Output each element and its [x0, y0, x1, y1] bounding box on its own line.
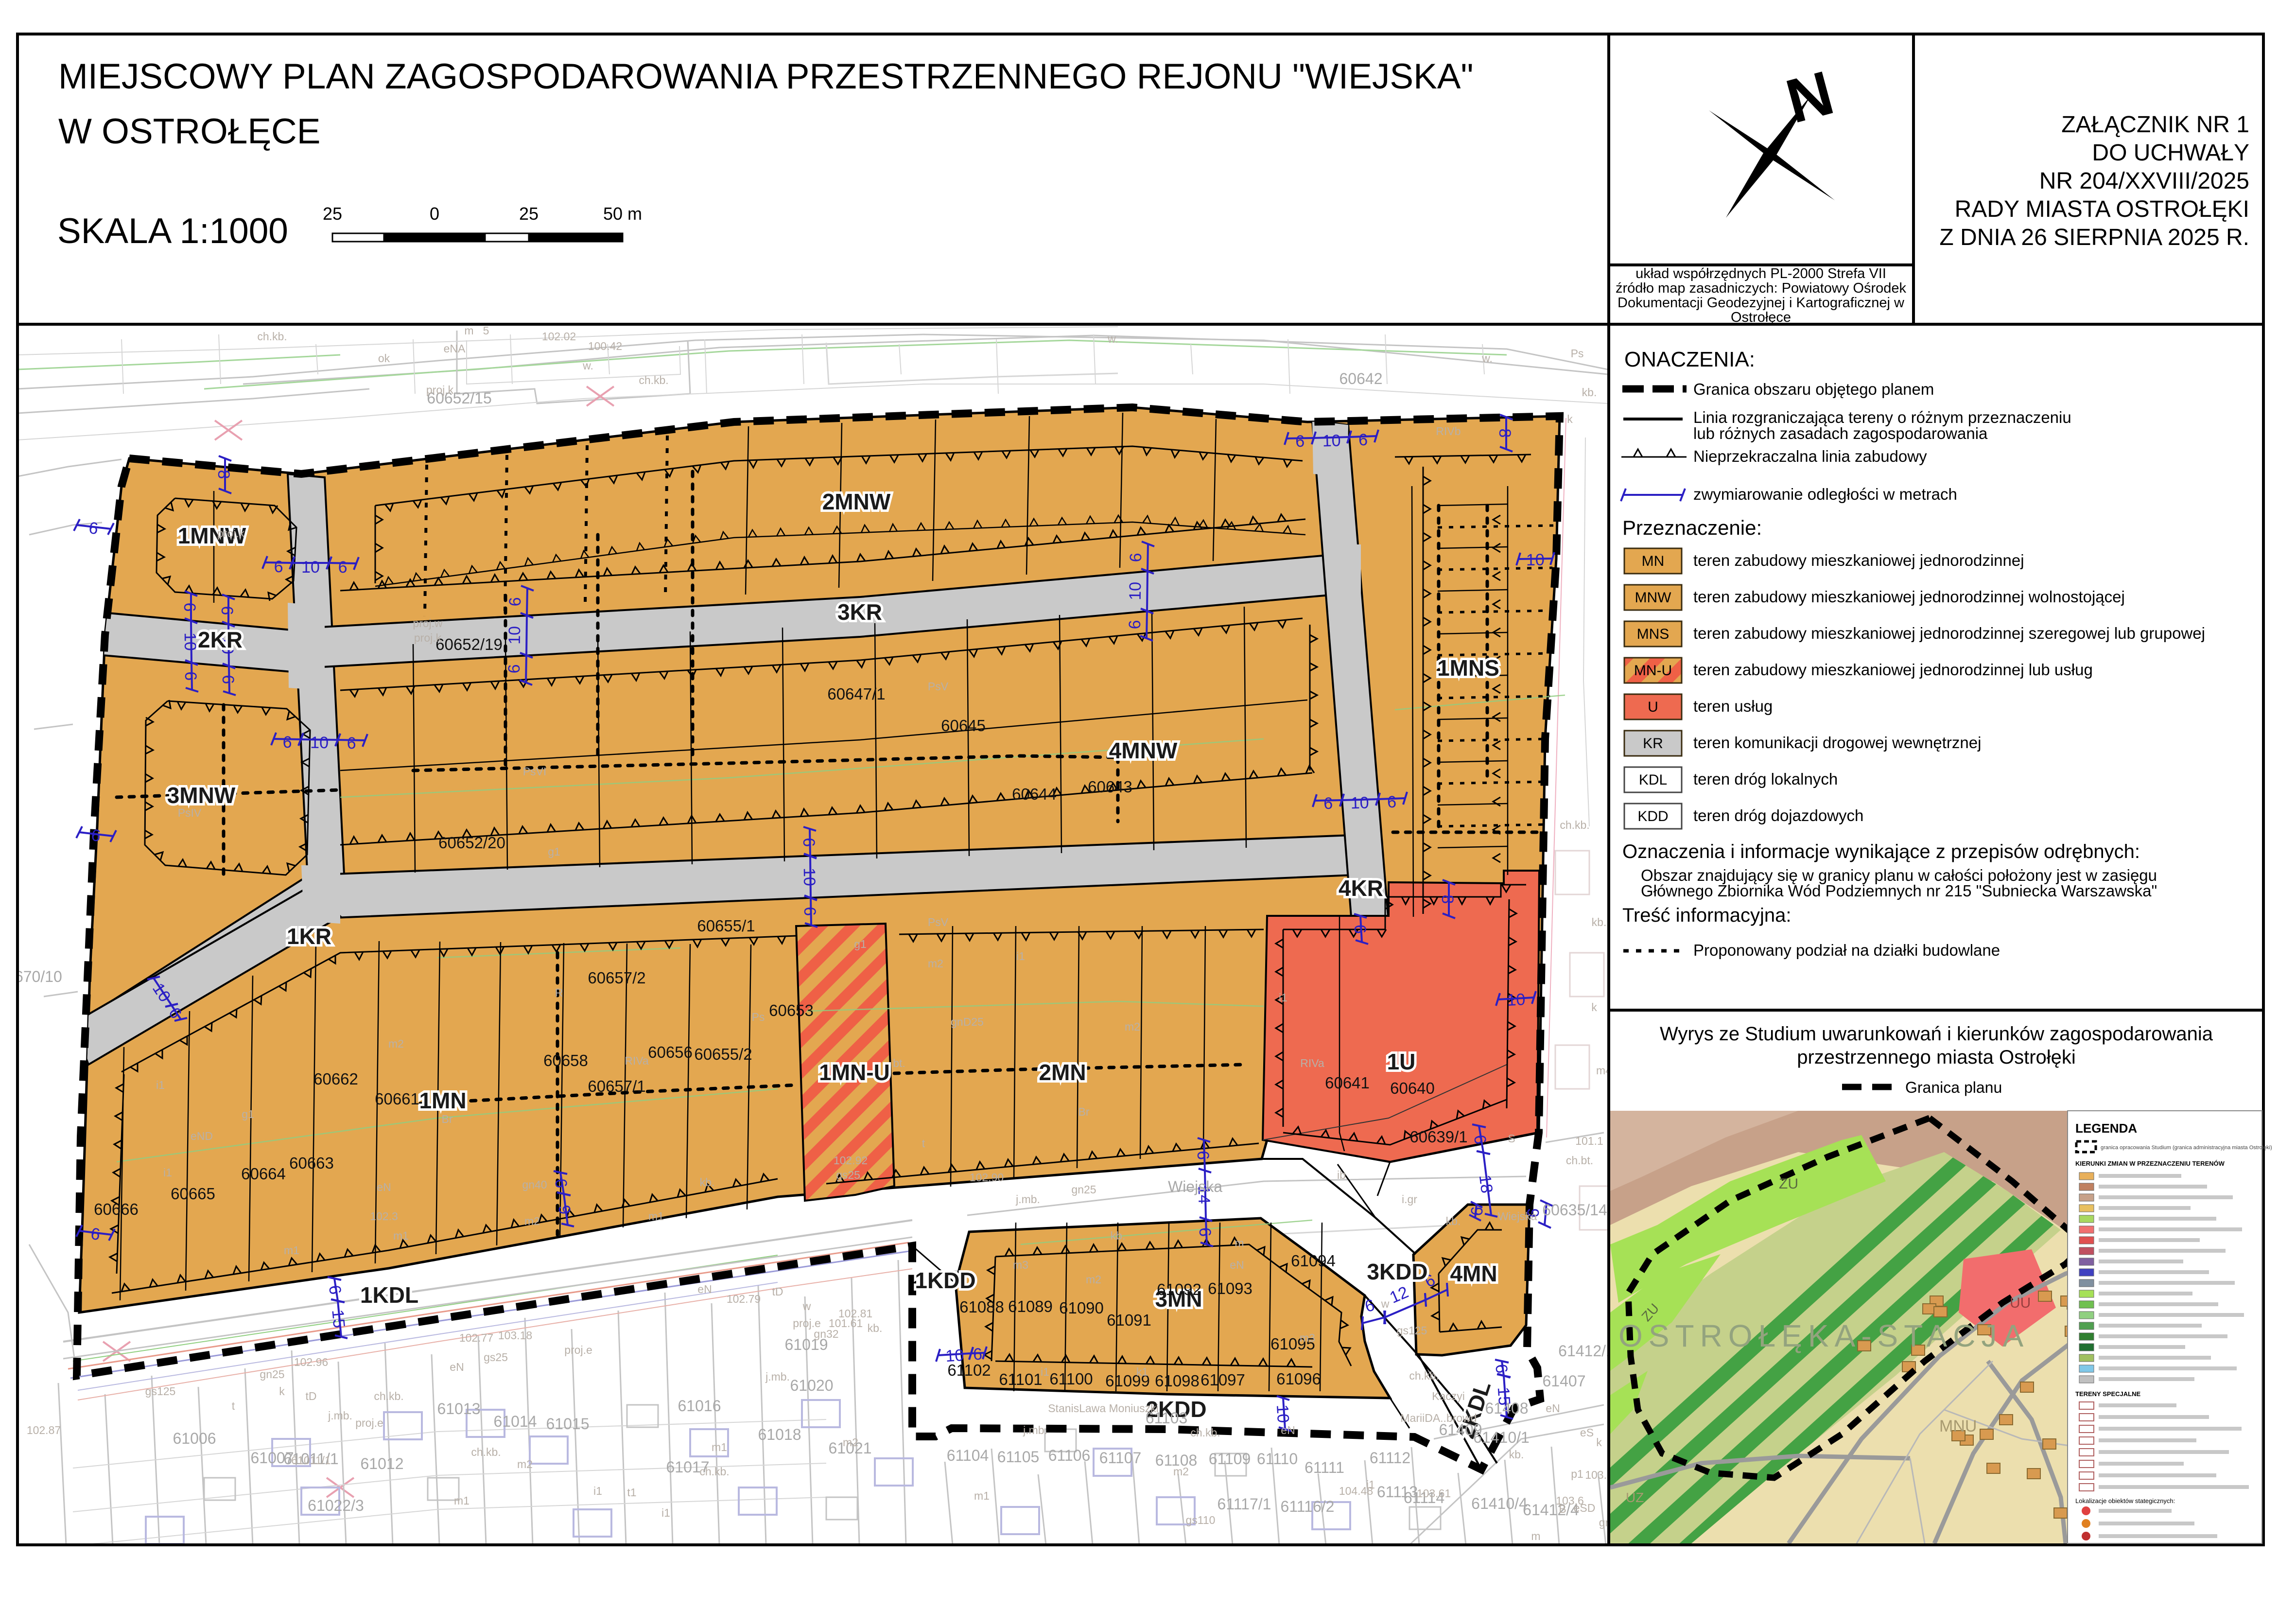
- svg-text:10: 10: [1350, 794, 1369, 813]
- svg-text:61102: 61102: [947, 1361, 991, 1379]
- svg-text:Ps: Ps: [752, 1011, 765, 1023]
- svg-text:2MNW: 2MNW: [822, 489, 891, 514]
- svg-text:UU: UU: [2010, 1295, 2031, 1311]
- svg-text:3MNW: 3MNW: [167, 783, 236, 808]
- svg-text:S: S: [1508, 1132, 1515, 1145]
- svg-text:lub różnych zasadach zagospoda: lub różnych zasadach zagospodarowania: [1693, 424, 1988, 442]
- svg-text:TERENY SPECJALNE: TERENY SPECJALNE: [2075, 1390, 2140, 1398]
- svg-text:eN: eN: [697, 1283, 712, 1295]
- svg-text:teren komunikacji drogowej wew: teren komunikacji drogowej wewnętrznej: [1693, 734, 1981, 752]
- svg-text:m2: m2: [1173, 1465, 1189, 1478]
- svg-text:1MN-U: 1MN-U: [819, 1060, 890, 1085]
- svg-text:6: 6: [180, 603, 199, 612]
- svg-text:61090: 61090: [1059, 1299, 1104, 1317]
- svg-text:61412/1: 61412/1: [1558, 1342, 1615, 1360]
- svg-text:4MNW: 4MNW: [1109, 738, 1178, 763]
- svg-text:NR 204/XXVIII/2025: NR 204/XXVIII/2025: [2039, 168, 2249, 194]
- svg-text:źródło map zasadniczych: Powia: źródło map zasadniczych: Powiatowy Ośrod…: [1616, 280, 1906, 296]
- svg-text:102.90: 102.90: [970, 1171, 1004, 1184]
- svg-text:60666: 60666: [94, 1200, 139, 1218]
- svg-text:61092: 61092: [1157, 1280, 1201, 1298]
- svg-text:m1: m1: [648, 1210, 664, 1223]
- svg-text:60642: 60642: [1339, 370, 1383, 387]
- svg-text:60635/14: 60635/14: [1542, 1201, 1607, 1219]
- svg-text:zwymiarowanie odległości w met: zwymiarowanie odległości w metrach: [1693, 485, 1957, 503]
- svg-text:PsV: PsV: [928, 916, 949, 928]
- svg-text:R: R: [555, 986, 563, 999]
- svg-text:ch.kb.: ch.kb.: [1409, 1369, 1439, 1382]
- svg-text:tD: tD: [772, 1285, 783, 1298]
- svg-text:60655/1: 60655/1: [697, 917, 755, 935]
- svg-text:61109: 61109: [1209, 1450, 1251, 1468]
- svg-text:3KR: 3KR: [837, 599, 882, 625]
- svg-text:103.61: 103.61: [1417, 1487, 1451, 1500]
- svg-text:6: 6: [506, 597, 524, 607]
- svg-text:eN: eN: [1230, 1259, 1244, 1271]
- svg-text:60653: 60653: [769, 1001, 814, 1019]
- svg-text:Oznaczenia i informacje wynika: Oznaczenia i informacje wynikające z prz…: [1622, 841, 2140, 862]
- svg-text:60641: 60641: [1325, 1074, 1370, 1092]
- svg-text:ch.kb.: ch.kb.: [699, 1465, 729, 1478]
- svg-text:ch.kb.: ch.kb.: [1560, 819, 1589, 831]
- svg-text:61093: 61093: [1208, 1279, 1252, 1297]
- svg-text:teren dróg lokalnych: teren dróg lokalnych: [1693, 770, 1838, 788]
- svg-text:100.42: 100.42: [588, 340, 622, 352]
- svg-text:KDD: KDD: [1637, 808, 1668, 824]
- svg-text:6: 6: [1358, 431, 1368, 450]
- svg-text:1KR: 1KR: [287, 924, 331, 949]
- svg-text:61104: 61104: [947, 1447, 989, 1464]
- svg-text:W OSTROŁĘCE: W OSTROŁĘCE: [58, 112, 320, 151]
- svg-text:10: 10: [1526, 551, 1545, 570]
- svg-text:g1: g1: [854, 938, 867, 950]
- svg-text:61110: 61110: [1257, 1450, 1298, 1468]
- svg-text:gnD25: gnD25: [951, 1015, 984, 1028]
- svg-text:Z DNIA 26 SIERPNIA 2025 R.: Z DNIA 26 SIERPNIA 2025 R.: [1939, 225, 2249, 250]
- svg-text:kb.: kb.: [1446, 1215, 1461, 1227]
- svg-text:proj.k: proj.k: [217, 527, 245, 540]
- svg-text:102.96: 102.96: [294, 1356, 328, 1368]
- svg-text:eN: eN: [450, 1361, 464, 1373]
- svg-text:eND: eND: [191, 1130, 213, 1142]
- svg-text:61096: 61096: [1276, 1370, 1321, 1388]
- svg-text:60665: 60665: [171, 1185, 215, 1203]
- svg-text:61016: 61016: [678, 1397, 721, 1415]
- svg-text:15: 15: [328, 1309, 348, 1329]
- svg-text:18: 18: [1476, 1174, 1496, 1194]
- svg-text:6: 6: [1295, 432, 1305, 451]
- svg-text:t: t: [232, 1400, 235, 1412]
- svg-text:61112: 61112: [1370, 1449, 1410, 1467]
- svg-text:w.: w.: [1481, 352, 1493, 365]
- svg-text:6: 6: [181, 671, 200, 681]
- svg-text:m: m: [1235, 1237, 1244, 1249]
- svg-text:Br: Br: [1078, 1105, 1090, 1118]
- svg-text:m: m: [464, 324, 473, 337]
- svg-text:61116/2: 61116/2: [1281, 1498, 1335, 1515]
- svg-text:kb.: kb.: [1111, 1229, 1126, 1242]
- svg-text:60662: 60662: [313, 1070, 358, 1088]
- svg-text:61117/1: 61117/1: [1218, 1495, 1271, 1513]
- svg-text:k: k: [279, 1385, 285, 1398]
- svg-text:kb.: kb.: [1592, 916, 1607, 928]
- svg-text:bt.: bt.: [893, 1057, 905, 1069]
- svg-text:teren zabudowy mieszkaniowej j: teren zabudowy mieszkaniowej jednorodzin…: [1693, 588, 2125, 606]
- svg-text:PsVI: PsVI: [523, 765, 547, 778]
- svg-text:61022/3: 61022/3: [308, 1497, 364, 1514]
- svg-text:m1: m1: [284, 1244, 299, 1257]
- svg-text:ZAŁĄCZNIK NR 1: ZAŁĄCZNIK NR 1: [2061, 112, 2249, 138]
- svg-text:Ostrołęce: Ostrołęce: [1731, 310, 1791, 325]
- svg-text:m1: m1: [712, 1441, 727, 1453]
- svg-text:teren dróg dojazdowych: teren dróg dojazdowych: [1693, 806, 1863, 824]
- svg-text:6: 6: [1126, 620, 1144, 630]
- svg-text:Proponowany podział na działki: Proponowany podział na działki budowlane: [1693, 941, 2000, 959]
- svg-text:6: 6: [505, 664, 523, 674]
- svg-text:w.: w.: [582, 359, 593, 372]
- svg-text:10: 10: [310, 734, 329, 752]
- svg-text:60652/20: 60652/20: [438, 834, 505, 852]
- svg-text:SKALA 1:1000: SKALA 1:1000: [57, 211, 288, 251]
- svg-text:granica opracowania Studium (g: granica opracowania Studium (granica adm…: [2101, 1145, 2272, 1151]
- svg-text:ch.kb.: ch.kb.: [257, 330, 287, 343]
- svg-text:Wiejska: Wiejska: [1498, 1210, 1537, 1223]
- svg-text:g1: g1: [242, 1108, 254, 1120]
- svg-text:j.mb.: j.mb.: [328, 1409, 352, 1422]
- svg-text:61410/4: 61410/4: [1471, 1495, 1528, 1512]
- svg-text:ch.kb.: ch.kb.: [639, 374, 668, 386]
- svg-text:61006: 61006: [173, 1430, 216, 1447]
- svg-text:j.mb.: j.mb.: [1023, 1424, 1047, 1436]
- svg-text:61018: 61018: [758, 1426, 801, 1443]
- svg-text:Nieprzekraczalna linia zabudow: Nieprzekraczalna linia zabudowy: [1693, 447, 1927, 465]
- svg-text:102.02: 102.02: [542, 330, 576, 343]
- svg-text:6: 6: [1196, 1227, 1215, 1237]
- svg-text:ok: ok: [378, 352, 390, 365]
- svg-text:6: 6: [1323, 794, 1333, 813]
- svg-text:i1: i1: [1041, 1365, 1049, 1378]
- svg-text:61407: 61407: [1543, 1372, 1586, 1390]
- svg-text:102.87: 102.87: [27, 1424, 61, 1436]
- svg-text:gn40: gn40: [522, 1178, 547, 1191]
- svg-text:m2: m2: [388, 1037, 404, 1050]
- svg-text:1MN: 1MN: [419, 1088, 466, 1113]
- svg-text:MNS: MNS: [1637, 626, 1670, 642]
- svg-text:gs125: gs125: [145, 1385, 176, 1398]
- svg-text:KIERUNKI ZMIAN W PRZEZNACZENIU: KIERUNKI ZMIAN W PRZEZNACZENIU TERENÓW: [2075, 1160, 2225, 1167]
- svg-text:j.mb.: j.mb.: [765, 1370, 790, 1383]
- svg-text:Dokumentacji Geodezyjnej i Kar: Dokumentacji Geodezyjnej i Kartograficzn…: [1618, 295, 1905, 311]
- svg-text:eSD: eSD: [1574, 1502, 1596, 1514]
- svg-text:10: 10: [1126, 582, 1145, 600]
- svg-text:MIEJSCOWY PLAN ZAGOSPODAROWANI: MIEJSCOWY PLAN ZAGOSPODAROWANIA PRZESTRZ…: [58, 57, 1473, 96]
- svg-text:UZ: UZ: [1626, 1490, 1644, 1505]
- svg-text:gs25: gs25: [484, 1351, 508, 1364]
- svg-text:m2: m2: [524, 1215, 540, 1227]
- svg-text:Głównego Zbiornika Wód Podziem: Głównego Zbiornika Wód Podziemnych nr 21…: [1641, 882, 2157, 900]
- svg-text:MNW: MNW: [1635, 590, 1672, 606]
- svg-text:PsIV: PsIV: [178, 806, 202, 819]
- svg-text:i1: i1: [1016, 950, 1025, 962]
- svg-text:układ współrzędnych PL-2000 S: układ współrzędnych PL-2000 Strefa VII: [1635, 266, 1886, 281]
- svg-text:tD: tD: [306, 1390, 317, 1402]
- svg-text:proj.e: proj.e: [355, 1417, 383, 1429]
- svg-text:U: U: [1648, 699, 1658, 715]
- svg-text:10: 10: [505, 626, 524, 645]
- svg-text:g1: g1: [548, 845, 560, 858]
- svg-text:t: t: [922, 1137, 925, 1150]
- svg-text:6: 6: [219, 675, 237, 684]
- svg-text:ONACZENIA:: ONACZENIA:: [1624, 348, 1755, 371]
- svg-text:61089: 61089: [1008, 1297, 1053, 1315]
- svg-text:DO UCHWAŁY: DO UCHWAŁY: [2092, 140, 2249, 166]
- svg-text:Granica obszaru objętego plan: Granica obszaru objętego planem: [1693, 380, 1934, 398]
- svg-text:61111: 61111: [1305, 1459, 1344, 1476]
- svg-text:RIVa: RIVa: [625, 1054, 649, 1067]
- svg-text:w.: w.: [1107, 332, 1118, 345]
- svg-text:8: 8: [214, 470, 233, 479]
- svg-text:61015: 61015: [546, 1415, 590, 1433]
- svg-text:61097: 61097: [1200, 1371, 1245, 1389]
- svg-text:kb.: kb.: [1509, 1448, 1524, 1461]
- svg-text:3KDD: 3KDD: [1367, 1259, 1427, 1284]
- svg-text:60643: 60643: [1088, 778, 1132, 796]
- svg-text:61020: 61020: [790, 1377, 834, 1394]
- svg-text:103.18: 103.18: [498, 1329, 532, 1342]
- svg-text:w: w: [1381, 1297, 1390, 1310]
- svg-text:i.gr: i.gr: [1402, 1193, 1417, 1206]
- svg-text:60645: 60645: [941, 717, 986, 735]
- svg-text:60657/1: 60657/1: [588, 1077, 645, 1095]
- svg-text:Kaczyi: Kaczyi: [1432, 1390, 1465, 1402]
- svg-text:RIVb: RIVb: [1436, 425, 1461, 437]
- svg-text:25: 25: [519, 204, 539, 224]
- svg-text:Wiejska: Wiejska: [1168, 1178, 1222, 1195]
- svg-text:eN: eN: [1281, 1424, 1295, 1436]
- svg-text:teren zabudowy mieszkaniowej j: teren zabudowy mieszkaniowej jednorodzin…: [1693, 661, 2093, 679]
- svg-text:6: 6: [274, 558, 283, 576]
- svg-text:kb.: kb.: [1582, 386, 1597, 399]
- svg-text:Lokalizacje obiektów stategicz: Lokalizacje obiektów stategicznych:: [2075, 1497, 2175, 1505]
- svg-text:60663: 60663: [289, 1154, 334, 1172]
- svg-text:60657/2: 60657/2: [588, 969, 645, 987]
- svg-text:102.81: 102.81: [838, 1307, 872, 1320]
- svg-text:kb.: kb.: [868, 1322, 883, 1334]
- svg-text:61011/1: 61011/1: [291, 1454, 330, 1467]
- svg-text:w: w: [802, 1300, 811, 1312]
- svg-text:10: 10: [1273, 1404, 1292, 1423]
- svg-text:i1: i1: [661, 1506, 670, 1519]
- svg-text:6: 6: [800, 838, 818, 847]
- svg-text:k: k: [1591, 1001, 1597, 1014]
- svg-text:eN: eN: [377, 1181, 391, 1193]
- svg-text:eS: eS: [1580, 1426, 1594, 1439]
- svg-text:m2: m2: [1125, 1020, 1140, 1033]
- svg-text:4MN: 4MN: [1450, 1261, 1497, 1286]
- svg-text:60652/19: 60652/19: [435, 635, 503, 653]
- svg-text:gn25: gn25: [1071, 1183, 1096, 1196]
- svg-text:102.92: 102.92: [834, 1154, 868, 1167]
- svg-text:proj.k: proj.k: [426, 384, 454, 396]
- svg-text:m1: m1: [454, 1494, 470, 1507]
- svg-text:ch.kb.: ch.kb.: [1190, 1426, 1220, 1439]
- svg-text:MariiDA..browd: MariiDA..browd: [1400, 1412, 1477, 1424]
- svg-text:RIVa: RIVa: [1300, 1057, 1324, 1069]
- svg-text:eN: eN: [1546, 1402, 1560, 1415]
- svg-text:61100: 61100: [1049, 1370, 1093, 1388]
- svg-text:eNA: eNA: [444, 342, 466, 355]
- svg-text:k1: k1: [1136, 1365, 1148, 1378]
- svg-text:kb.: kb.: [700, 1176, 715, 1189]
- svg-text:6: 6: [1194, 1151, 1213, 1160]
- svg-text:Linia rozgraniczająca tereny o: Linia rozgraniczająca tereny o różnym pr…: [1693, 408, 2071, 426]
- svg-text:61101: 61101: [999, 1370, 1042, 1388]
- svg-text:Ps: Ps: [1571, 347, 1584, 360]
- svg-text:Treść informacyjna:: Treść informacyjna:: [1622, 905, 1792, 926]
- svg-text:KDL: KDL: [1639, 772, 1667, 788]
- svg-text:4KR: 4KR: [1339, 875, 1383, 901]
- svg-text:m1: m1: [393, 1229, 409, 1242]
- svg-text:teren zabudowy mieszkaniowej j: teren zabudowy mieszkaniowej jednorodzin…: [1693, 551, 2024, 569]
- svg-text:102.3: 102.3: [370, 1210, 398, 1223]
- svg-text:proj.e: proj.e: [564, 1344, 592, 1356]
- svg-text:Granica planu: Granica planu: [1905, 1079, 2002, 1096]
- svg-text:101.1: 101.1: [1575, 1135, 1603, 1147]
- svg-text:60644: 60644: [1012, 785, 1057, 803]
- svg-text:LEGENDA: LEGENDA: [2075, 1121, 2137, 1136]
- svg-text:przestrzennego miasta Ostrołęk: przestrzennego miasta Ostrołęki: [1797, 1047, 2076, 1068]
- svg-text:m3: m3: [1013, 1259, 1028, 1271]
- svg-text:PsV: PsV: [928, 680, 949, 693]
- svg-text:10: 10: [1322, 431, 1341, 450]
- svg-text:t1: t1: [627, 1486, 636, 1499]
- svg-text:m2: m2: [928, 957, 943, 970]
- svg-text:61013: 61013: [437, 1400, 481, 1417]
- svg-text:k: k: [1596, 1436, 1602, 1449]
- svg-text:10: 10: [181, 632, 199, 651]
- svg-text:m3: m3: [1300, 1331, 1315, 1344]
- svg-text:6: 6: [282, 733, 292, 752]
- svg-text:1U: 1U: [1387, 1049, 1416, 1074]
- svg-text:6: 6: [1127, 553, 1145, 562]
- svg-text:6: 6: [1350, 924, 1369, 934]
- svg-text:gs110: gs110: [1186, 1514, 1216, 1526]
- svg-text:gs25: gs25: [836, 1169, 860, 1181]
- svg-text:60658: 60658: [543, 1051, 588, 1069]
- svg-text:61098: 61098: [1155, 1372, 1200, 1390]
- svg-text:i1: i1: [156, 1079, 165, 1091]
- svg-text:StanisLawa Moniuszki: StanisLawa Moniuszki: [1048, 1402, 1159, 1415]
- svg-text:10: 10: [800, 868, 818, 886]
- svg-text:50 m: 50 m: [603, 204, 642, 224]
- svg-text:60639/1: 60639/1: [1409, 1128, 1467, 1146]
- svg-text:61094: 61094: [1291, 1252, 1336, 1270]
- svg-text:61106: 61106: [1048, 1447, 1091, 1464]
- svg-text:ch.bt.: ch.bt.: [1566, 1154, 1593, 1167]
- svg-text:m2: m2: [1086, 1273, 1101, 1286]
- svg-text:gn32: gn32: [814, 1328, 838, 1340]
- svg-text:KR: KR: [1643, 735, 1663, 752]
- svg-text:gs125: gs125: [1397, 1324, 1427, 1337]
- svg-text:8: 8: [1438, 895, 1457, 904]
- svg-text:m2: m2: [843, 1436, 858, 1449]
- svg-text:61408: 61408: [1485, 1400, 1529, 1417]
- svg-text:1KDL: 1KDL: [360, 1282, 418, 1308]
- svg-text:60664: 60664: [241, 1165, 286, 1183]
- svg-text:10: 10: [301, 558, 320, 577]
- svg-text:102.77: 102.77: [459, 1331, 493, 1344]
- svg-text:61088: 61088: [959, 1298, 1004, 1316]
- svg-text:ib: ib: [1337, 1169, 1346, 1181]
- svg-text:104.48: 104.48: [1339, 1485, 1373, 1497]
- svg-text:0: 0: [430, 204, 439, 224]
- svg-text:ch.kb.: ch.kb.: [471, 1446, 501, 1458]
- svg-text:61410/1: 61410/1: [1473, 1429, 1530, 1446]
- svg-text:OSTROŁĘKA-STACJA: OSTROŁĘKA-STACJA: [1618, 1318, 2029, 1353]
- svg-text:25: 25: [323, 204, 342, 224]
- svg-text:teren zabudowy mieszkaniowej j: teren zabudowy mieszkaniowej jednorodzin…: [1693, 624, 2205, 642]
- svg-text:6: 6: [347, 734, 356, 752]
- svg-text:60661: 60661: [375, 1090, 419, 1108]
- svg-text:m: m: [1531, 1530, 1540, 1542]
- svg-text:6: 6: [338, 558, 348, 577]
- svg-text:6: 6: [800, 907, 819, 916]
- svg-text:gn25: gn25: [260, 1368, 284, 1381]
- svg-text:2MN: 2MN: [1039, 1060, 1086, 1085]
- svg-text:Wyrys ze Studium uwarunkowań i: Wyrys ze Studium uwarunkowań i kierunków…: [1660, 1023, 2213, 1045]
- svg-text:60647/1: 60647/1: [827, 685, 885, 703]
- svg-text:60640: 60640: [1390, 1079, 1435, 1097]
- svg-text:MN-U: MN-U: [1634, 663, 1672, 679]
- svg-text:1MNS: 1MNS: [1437, 655, 1499, 681]
- svg-text:i1: i1: [593, 1485, 602, 1497]
- svg-text:6: 6: [1387, 793, 1396, 812]
- svg-text:teren usług: teren usług: [1693, 697, 1773, 715]
- svg-text:61012: 61012: [361, 1455, 404, 1472]
- svg-text:10: 10: [1506, 990, 1526, 1010]
- svg-text:61014: 61014: [494, 1413, 537, 1430]
- svg-text:B: B: [1559, 1503, 1566, 1515]
- svg-text:k: k: [1567, 413, 1573, 425]
- svg-text:6: 6: [218, 606, 236, 615]
- svg-text:1KDD: 1KDD: [915, 1268, 975, 1293]
- svg-text:60655/2: 60655/2: [694, 1045, 752, 1063]
- svg-text:MN: MN: [1642, 553, 1665, 569]
- svg-text:2KR: 2KR: [198, 627, 243, 652]
- svg-text:61107: 61107: [1099, 1449, 1142, 1467]
- svg-text:Br: Br: [442, 1113, 453, 1125]
- svg-text:8: 8: [1496, 429, 1514, 438]
- svg-text:61105: 61105: [997, 1448, 1040, 1466]
- svg-text:MNU: MNU: [1939, 1417, 1977, 1435]
- svg-text:5: 5: [483, 324, 489, 337]
- svg-text:proj.k: proj.k: [414, 631, 442, 644]
- svg-text:RADY MIASTA OSTROŁĘKI: RADY MIASTA OSTROŁĘKI: [1955, 196, 2249, 222]
- svg-text:Przeznaczenie:: Przeznaczenie:: [1622, 516, 1762, 539]
- svg-text:proj.w: proj.w: [413, 617, 443, 630]
- svg-text:m1: m1: [974, 1489, 990, 1502]
- svg-text:102.79: 102.79: [727, 1293, 761, 1305]
- svg-text:i1: i1: [1279, 991, 1287, 1004]
- svg-text:61091: 61091: [1107, 1311, 1151, 1329]
- svg-text:m2: m2: [517, 1458, 533, 1470]
- svg-text:ZU: ZU: [1779, 1176, 1798, 1192]
- svg-text:i1: i1: [163, 1166, 172, 1179]
- svg-text:60656: 60656: [648, 1043, 693, 1061]
- svg-text:ch.kb.: ch.kb.: [374, 1390, 403, 1402]
- svg-text:j.mb.: j.mb.: [1015, 1193, 1040, 1206]
- svg-text:p1: p1: [1571, 1468, 1583, 1480]
